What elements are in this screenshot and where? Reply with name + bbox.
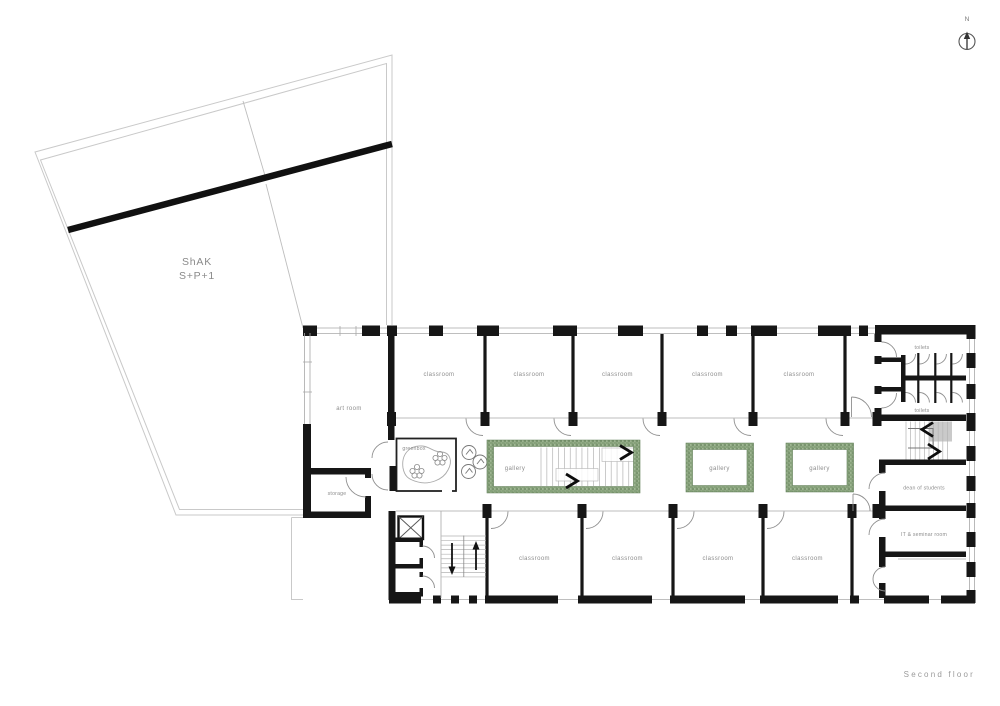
floor-plan: ShAK S+P+1 [0, 0, 1000, 706]
stall-partition [934, 353, 936, 376]
room-label-greenbox: greenbox [402, 446, 425, 452]
shak-label-line1: ShAK [182, 256, 212, 268]
room-label-classroom: classroom [519, 556, 550, 562]
room-label-gallery: gallery [809, 466, 829, 472]
corridor-pillar [848, 504, 857, 518]
floor-plan-canvas: ShAK S+P+1 [0, 0, 1000, 706]
classroom-wall [761, 518, 764, 598]
wall-segment [670, 596, 745, 604]
classroom-wall [571, 334, 574, 414]
classroom-wall [660, 334, 663, 414]
room-label-it-seminar: IT & seminar room [901, 532, 947, 538]
corridor-pillar [749, 412, 758, 426]
room-label-gallery: gallery [709, 466, 729, 472]
corridor-pillar [483, 504, 492, 518]
room-label-classroom: classroom [703, 556, 734, 562]
classroom-wall [671, 518, 674, 598]
wall-segment [433, 596, 441, 604]
wall-segment [967, 413, 976, 431]
wall-pillar [726, 326, 737, 337]
classroom-wall [751, 334, 754, 414]
wall-pillar [697, 326, 708, 337]
room-greenbox: greenbox [390, 439, 457, 493]
corridor-pillar [658, 412, 667, 426]
room-label-toilets: toilets [915, 345, 930, 351]
classroom-wall [843, 334, 846, 414]
room-label-classroom: classroom [602, 372, 633, 378]
wall-segment [967, 384, 976, 399]
wall-pillar [751, 326, 777, 337]
shak-label-line2: S+P+1 [179, 270, 215, 282]
toilets-top-wall [875, 325, 975, 335]
room-label-toilets: toilets [915, 408, 930, 414]
wall-segment [967, 532, 976, 547]
room-label-classroom: classroom [692, 372, 723, 378]
wall-segment [451, 596, 459, 604]
stall-partition [950, 353, 952, 376]
wall-pillar [859, 326, 868, 337]
wall-segment [578, 596, 652, 604]
wall-segment [967, 325, 976, 339]
room-label-classroom: classroom [514, 372, 545, 378]
room-label-dean: dean of students [903, 486, 945, 492]
wall-segment [967, 590, 976, 603]
north-label: N [965, 16, 970, 23]
room-art-room: art room [336, 406, 362, 412]
stall-partition [950, 381, 952, 404]
room-label-storage: storage [328, 491, 347, 497]
wall-pillar [362, 326, 380, 337]
wall-segment [485, 596, 558, 604]
wall-segment [967, 353, 976, 368]
floor-title: Second floor [904, 670, 975, 679]
classroom-wall [485, 518, 488, 598]
room-label-classroom: classroom [424, 372, 455, 378]
wall-segment [967, 446, 976, 461]
corridor-pillar [841, 412, 850, 426]
corridor-pillar [759, 504, 768, 518]
wall-segment [469, 596, 477, 604]
classroom-wall [850, 518, 853, 598]
room-label-art-room: art room [336, 406, 362, 412]
wall-segment [967, 562, 976, 577]
corridor-pillar [578, 504, 587, 518]
stall-partition [934, 381, 936, 404]
greenbox-opening [442, 489, 452, 493]
wall-pillar [429, 326, 443, 337]
wall-segment [760, 596, 838, 604]
room-label-classroom: classroom [784, 372, 815, 378]
gallery-ramp-rail [602, 448, 636, 462]
wall-segment [967, 503, 976, 518]
wall-segment [884, 596, 929, 604]
wall-segment [967, 476, 976, 491]
classroom-wall [483, 334, 486, 414]
classroom-wall [580, 518, 583, 598]
room-label-classroom: classroom [792, 556, 823, 562]
stall-partition [917, 381, 919, 404]
corridor-pillar [569, 412, 578, 426]
wall-pillar [477, 326, 499, 337]
stall-partition [917, 353, 919, 376]
room-label-gallery: gallery [505, 466, 525, 472]
corridor-pillar [481, 412, 490, 426]
corridor-pillar [669, 504, 678, 518]
wall-pillar [618, 326, 643, 337]
room-label-classroom: classroom [612, 556, 643, 562]
